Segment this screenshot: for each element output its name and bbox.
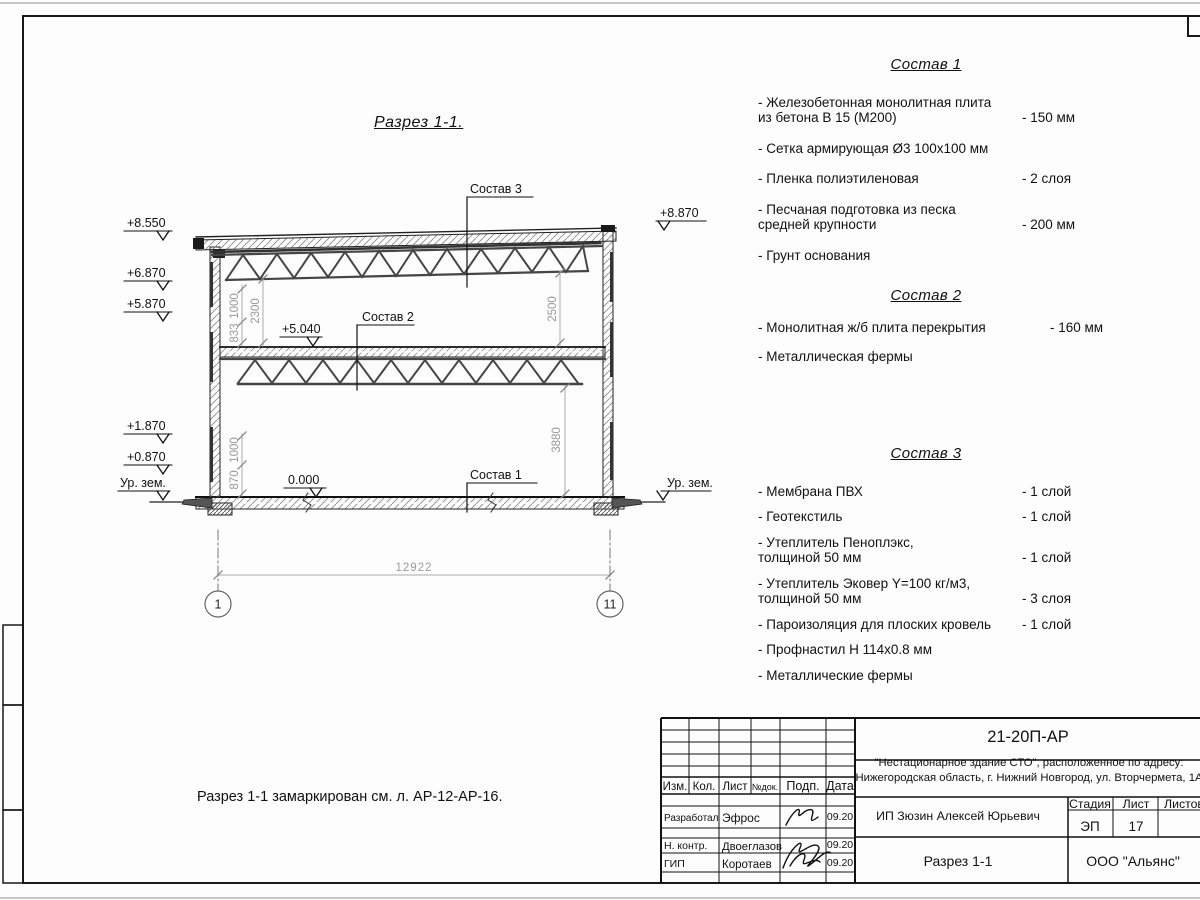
project-line1: "Нестационарное здание СТО", расположенн… [875,757,1184,769]
spec-item-value: - 160 мм [1050,320,1103,336]
project-line2: Нижегородская область, г. Нижний Новгоро… [855,772,1200,784]
elevation-marker: +5.870 [124,297,172,321]
sheet-title: Разрез 1-1 [924,853,993,869]
svg-text:1000: 1000 [229,293,241,319]
svg-text:09.20: 09.20 [827,857,853,869]
spec-item: - Пароизоляция для плоских кровель - 1 с… [758,617,1138,633]
spec-item-name: - Железобетонная монолитная плита из бет… [758,95,1022,126]
spec-item: - Сетка армирующая Ø3 100х100 мм [758,141,1138,157]
spec-item-value: - 150 мм [1022,110,1075,126]
svg-text:+0.870: +0.870 [127,450,166,464]
corner-box [1188,16,1200,36]
svg-text:Н. контр.: Н. контр. [664,840,707,852]
svg-text:2500: 2500 [547,296,559,322]
spec-item: - Грунт основания [758,248,1138,264]
spec-items: - Монолитная ж/б плита перекрытия - 160 … [758,320,1138,365]
spec-item-name: - Утеплитель Эковер Y=100 кг/м3, толщино… [758,576,1022,607]
spec-item-name: - Монолитная ж/б плита перекрытия [758,320,1050,336]
svg-text:12922: 12922 [396,562,433,574]
elevation-marker: +8.870 [656,206,706,230]
svg-text:833: 833 [229,323,241,342]
svg-text:11: 11 [604,598,617,612]
spec-item-name: - Металлические фермы [758,668,1022,684]
spec-item: - Металлические фермы [758,668,1138,684]
signature [786,809,818,825]
svg-text:+6.870: +6.870 [127,266,166,280]
spec-item: - Песчаная подготовка из песка средней к… [758,202,1138,233]
spec-items: - Мембрана ПВХ - 1 слой - Геотекстиль - … [758,484,1138,684]
elevation-marker: +8.550 [124,216,172,240]
svg-text:+8.870: +8.870 [660,206,699,220]
spec-item-name: - Геотекстиль [758,509,1022,525]
svg-text:Кол.: Кол. [693,781,716,793]
listov-label: Листов [1164,797,1200,811]
svg-text:Состав 2: Состав 2 [362,310,414,324]
sheet-number: 17 [1128,819,1143,834]
svg-text:Эфрос: Эфрос [722,811,760,825]
svg-text:0.000: 0.000 [288,473,319,487]
spec-item: - Утеплитель Эковер Y=100 кг/м3, толщино… [758,576,1138,607]
spec-list-2: Состав 2 - Монолитная ж/б плита перекрыт… [758,288,1138,379]
stage-value: ЭП [1080,819,1099,834]
spec-item-name: - Грунт основания [758,248,1022,264]
svg-text:3880: 3880 [551,427,563,453]
svg-text:09.20: 09.20 [827,811,853,823]
spec-item-name: - Утеплитель Пеноплэкс, толщиной 50 мм [758,535,1022,566]
spec-list-3: Состав 3 - Мембрана ПВХ - 1 слой - Геоте… [758,446,1138,693]
spec-item: - Пленка полиэтиленовая - 2 слоя [758,171,1138,187]
spec-item-name: - Сетка армирующая Ø3 100х100 мм [758,141,1022,157]
floor-truss [220,359,605,384]
spec-title: Состав 2 [758,288,1094,304]
stage-label: Стадия [1069,797,1111,811]
left-edge-boxes [3,625,23,883]
signatures [783,809,831,868]
svg-text:Двоеглазов: Двоеглазов [722,841,782,853]
spec-item: - Монолитная ж/б плита перекрытия - 160 … [758,320,1138,336]
svg-text:Ур. зем.: Ур. зем. [120,476,166,490]
title-block-text: 21-20П-АР "Нестационарное здание СТО", р… [663,728,1200,871]
spec-item: - Мембрана ПВХ - 1 слой [758,484,1138,500]
svg-text:+8.550: +8.550 [127,216,166,230]
elevation-markers-right: +8.870 Ур. зем. [656,206,713,500]
spec-item-name: - Пароизоляция для плоских кровель [758,617,1022,633]
svg-text:+1.870: +1.870 [127,419,166,433]
spec-item-name: - Металлическая фермы [758,349,1050,365]
elevation-mid: +5.040 [280,322,322,346]
client: ИП Зюзин Алексей Юрьевич [876,809,1040,823]
svg-text:№док.: №док. [752,782,778,792]
spec-item-name: - Профнастил Н 114х0.8 мм [758,642,1022,658]
spec-item-value: - 200 мм [1022,217,1075,233]
svg-text:Подп.: Подп. [786,779,819,793]
company: ООО "Альянс" [1086,853,1180,869]
svg-text:Изм.: Изм. [663,781,688,793]
spec-items: - Железобетонная монолитная плита из бет… [758,95,1138,264]
svg-text:2300: 2300 [250,298,262,324]
section-drawing: +8.550 +6.870 +5.870 +1.870 +0.870 [118,182,713,617]
svg-text:1: 1 [215,598,222,612]
spec-item: - Железобетонная монолитная плита из бет… [758,95,1138,126]
plinth-right [612,498,642,508]
svg-text:1000: 1000 [229,437,241,463]
elevation-markers-left: +8.550 +6.870 +5.870 +1.870 +0.870 [118,216,172,500]
mid-floor [220,347,605,357]
spec-item: - Утеплитель Пеноплэкс, толщиной 50 мм -… [758,535,1138,566]
spec-item-name: - Мембрана ПВХ [758,484,1022,500]
elevation-marker-ground: Ур. зем. [657,476,713,500]
svg-text:Состав 1: Состав 1 [470,468,522,482]
dimensions: 1000 833 2300 1000 870 2500 3880 [214,269,614,579]
spec-item-value: - 1 слой [1022,550,1071,566]
elevation-marker-ground: Ур. зем. [118,476,170,500]
svg-text:ГИП: ГИП [664,858,685,870]
spec-item-value: - 3 слоя [1022,591,1071,607]
svg-text:Коротаев: Коротаев [722,859,772,871]
spec-item-value: - 1 слой [1022,617,1071,633]
marking-note: Разрез 1-1 замаркирован см. л. АР-12-АР-… [197,789,502,805]
svg-text:Дата: Дата [826,779,854,793]
elevation-marker: +1.870 [124,419,172,443]
svg-text:Разработал: Разработал [664,812,719,824]
spec-item-value: - 1 слой [1022,484,1071,500]
svg-text:870: 870 [229,470,241,489]
spec-item-name: - Песчаная подготовка из песка средней к… [758,202,1022,233]
svg-text:Состав 3: Состав 3 [470,182,522,196]
svg-text:Лист: Лист [723,781,749,793]
svg-text:09.20: 09.20 [827,839,853,851]
drawing-sheet: { "sheet": { "view_title": "Разрез 1-1."… [0,0,1200,900]
walls [210,229,613,497]
spec-item: - Геотекстиль - 1 слой [758,509,1138,525]
elevation-zero: 0.000 [284,473,326,497]
spec-title: Состав 3 [758,446,1094,462]
svg-text:+5.040: +5.040 [282,322,321,336]
spec-item-value: - 2 слоя [1022,171,1071,187]
view-title: Разрез 1-1. [374,114,463,132]
doc-number: 21-20П-АР [987,728,1069,746]
spec-item-value: - 1 слой [1022,509,1071,525]
title-block: 21-20П-АР "Нестационарное здание СТО", р… [661,718,1200,883]
spec-item: - Профнастил Н 114х0.8 мм [758,642,1138,658]
bearing-block [213,249,225,258]
spec-item: - Металлическая фермы [758,349,1138,365]
svg-text:+5.870: +5.870 [127,297,166,311]
spec-list-1: Состав 1 - Железобетонная монолитная пли… [758,57,1138,278]
svg-text:Ур. зем.: Ур. зем. [667,476,713,490]
elevation-marker: +6.870 [124,266,172,290]
parapet-cap-right [601,225,615,232]
elevation-marker: +0.870 [124,450,172,474]
spec-title: Состав 1 [758,57,1094,73]
spec-item-name: - Пленка полиэтиленовая [758,171,1022,187]
list-label: Лист [1123,797,1150,811]
fascia-left [193,238,204,249]
